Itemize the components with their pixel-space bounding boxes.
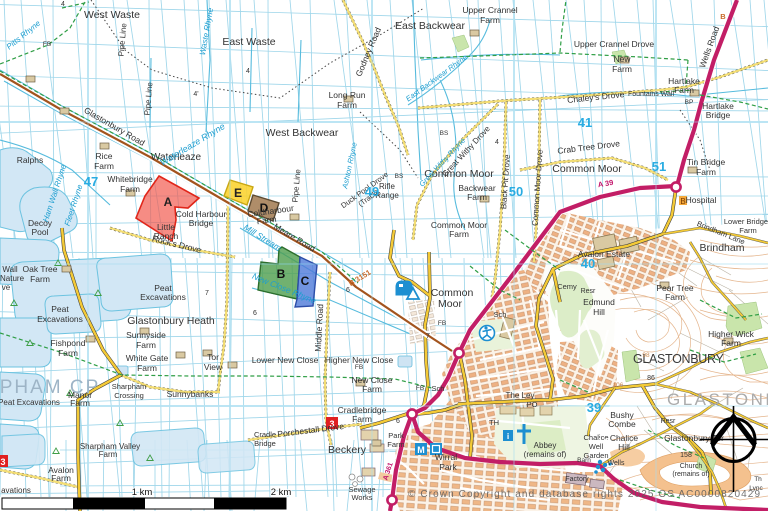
svg-text:Cemy: Cemy bbox=[557, 282, 577, 291]
svg-text:BS: BS bbox=[395, 173, 404, 180]
svg-text:ve: ve bbox=[2, 283, 11, 292]
svg-text:Upper Crannel Drove: Upper Crannel Drove bbox=[574, 39, 655, 49]
svg-text:Bridge: Bridge bbox=[706, 110, 731, 120]
svg-text:Barn: Barn bbox=[577, 457, 591, 464]
svg-text:Hill: Hill bbox=[618, 442, 630, 452]
svg-text:3: 3 bbox=[0, 457, 5, 467]
svg-text:Tin Bridge: Tin Bridge bbox=[687, 157, 726, 167]
svg-text:Peat: Peat bbox=[51, 304, 69, 314]
svg-text:(remains of): (remains of) bbox=[672, 471, 709, 478]
svg-text:6: 6 bbox=[253, 310, 257, 317]
svg-text:FB: FB bbox=[438, 320, 446, 327]
svg-text:FB: FB bbox=[355, 364, 363, 371]
svg-text:BP: BP bbox=[685, 99, 694, 106]
svg-text:East Waste: East Waste bbox=[222, 36, 275, 48]
svg-text:Beckery: Beckery bbox=[328, 444, 367, 456]
svg-text:158: 158 bbox=[680, 452, 692, 459]
svg-text:Fishpond: Fishpond bbox=[51, 338, 86, 348]
svg-text:Farm: Farm bbox=[337, 100, 357, 110]
svg-text:Edmund: Edmund bbox=[583, 297, 615, 307]
svg-text:Bridge: Bridge bbox=[189, 218, 214, 228]
svg-text:Farm: Farm bbox=[449, 229, 469, 239]
svg-text:© Crown Copyright and database: © Crown Copyright and database rights 20… bbox=[408, 489, 760, 500]
svg-text:FB: FB bbox=[416, 385, 424, 392]
svg-text:49: 49 bbox=[365, 184, 379, 199]
svg-text:Sunnyside: Sunnyside bbox=[126, 330, 166, 340]
svg-text:TH: TH bbox=[489, 418, 499, 427]
svg-text:West Backwear: West Backwear bbox=[266, 127, 339, 139]
svg-text:Resr: Resr bbox=[661, 418, 676, 425]
svg-text:Farm: Farm bbox=[480, 15, 500, 25]
svg-text:View: View bbox=[204, 362, 223, 372]
svg-text:40: 40 bbox=[581, 256, 595, 271]
svg-text:Park: Park bbox=[388, 431, 404, 440]
svg-text:Farm: Farm bbox=[136, 340, 156, 350]
svg-text:47: 47 bbox=[84, 174, 98, 189]
svg-text:Factory: Factory bbox=[565, 476, 589, 483]
svg-text:Resr: Resr bbox=[581, 288, 596, 295]
svg-text:Peat Excavations: Peat Excavations bbox=[0, 398, 60, 407]
svg-text:Farm: Farm bbox=[120, 184, 140, 194]
svg-text:Moor: Moor bbox=[438, 298, 462, 310]
svg-text:Th: Th bbox=[754, 476, 762, 483]
svg-text:Farm: Farm bbox=[58, 348, 78, 358]
svg-text:Farm: Farm bbox=[30, 274, 50, 284]
svg-text:Rifle: Rifle bbox=[379, 182, 396, 191]
svg-text:86: 86 bbox=[647, 375, 655, 382]
svg-text:Excavations: Excavations bbox=[37, 314, 83, 324]
svg-text:M: M bbox=[417, 445, 425, 455]
svg-text:Wells: Wells bbox=[608, 460, 625, 467]
svg-text:Farm: Farm bbox=[352, 414, 372, 424]
svg-text:41: 41 bbox=[578, 115, 592, 130]
svg-text:4: 4 bbox=[495, 139, 499, 146]
svg-text:(remains of): (remains of) bbox=[524, 450, 567, 459]
svg-text:Lower New Close: Lower New Close bbox=[252, 355, 319, 365]
svg-text:Fountains Wall: Fountains Wall bbox=[628, 91, 674, 98]
svg-text:7: 7 bbox=[426, 333, 430, 340]
svg-text:1 km: 1 km bbox=[132, 487, 153, 498]
svg-text:Farm: Farm bbox=[70, 398, 90, 408]
svg-text:B: B bbox=[720, 12, 726, 21]
svg-text:Long Run: Long Run bbox=[329, 90, 366, 100]
svg-text:Hospital: Hospital bbox=[686, 195, 717, 205]
svg-text:Works: Works bbox=[351, 493, 372, 502]
svg-text:Lower Bridge: Lower Bridge bbox=[724, 217, 768, 226]
svg-text:C: C bbox=[301, 274, 310, 288]
svg-text:4': 4' bbox=[193, 91, 198, 98]
svg-text:Farm: Farm bbox=[387, 440, 405, 449]
svg-text:Wall: Wall bbox=[2, 265, 17, 274]
svg-text:Crossing: Crossing bbox=[114, 391, 144, 400]
svg-text:Combe: Combe bbox=[608, 419, 636, 429]
svg-text:Ralphs: Ralphs bbox=[17, 155, 43, 165]
svg-text:Farm: Farm bbox=[739, 226, 757, 235]
svg-text:Upper Crannel: Upper Crannel bbox=[462, 5, 517, 15]
svg-text:Tor: Tor bbox=[207, 352, 219, 362]
svg-text:2 km: 2 km bbox=[271, 487, 292, 498]
svg-text:Farm: Farm bbox=[137, 363, 157, 373]
svg-text:Common Moor: Common Moor bbox=[552, 163, 622, 175]
svg-text:4: 4 bbox=[246, 68, 250, 75]
svg-text:White Gate: White Gate bbox=[126, 353, 169, 363]
svg-text:Bridge: Bridge bbox=[254, 439, 276, 448]
svg-text:Excavations: Excavations bbox=[140, 292, 186, 302]
svg-text:Farm: Farm bbox=[467, 192, 487, 202]
svg-text:GLASTONBU: GLASTONBU bbox=[667, 390, 768, 409]
svg-text:PO: PO bbox=[527, 400, 538, 409]
svg-text:Farm: Farm bbox=[696, 167, 716, 177]
svg-text:39: 39 bbox=[587, 400, 601, 415]
svg-text:98: 98 bbox=[642, 352, 650, 359]
svg-text:Nature: Nature bbox=[0, 274, 25, 283]
svg-text:A: A bbox=[164, 195, 173, 209]
svg-text:The Ley: The Ley bbox=[506, 391, 535, 400]
svg-text:51: 51 bbox=[652, 159, 666, 174]
svg-text:Hill: Hill bbox=[593, 307, 605, 317]
svg-text:Farm: Farm bbox=[362, 384, 382, 394]
svg-text:Whitebridge: Whitebridge bbox=[107, 174, 153, 184]
svg-text:Cradle: Cradle bbox=[254, 430, 276, 439]
svg-text:Abbey: Abbey bbox=[534, 441, 557, 450]
svg-text:4: 4 bbox=[61, 1, 65, 8]
svg-text:i: i bbox=[507, 431, 509, 441]
svg-text:Church: Church bbox=[680, 463, 703, 470]
svg-text:7: 7 bbox=[205, 290, 209, 297]
svg-text:New: New bbox=[613, 54, 631, 64]
svg-text:6: 6 bbox=[396, 418, 400, 425]
svg-text:6: 6 bbox=[346, 287, 350, 294]
svg-text:Wirral: Wirral bbox=[435, 452, 457, 462]
svg-text:East Backwear: East Backwear bbox=[395, 20, 466, 32]
svg-text:Farm: Farm bbox=[99, 450, 118, 459]
svg-text:avations: avations bbox=[1, 486, 31, 495]
svg-text:Sharpham: Sharpham bbox=[112, 382, 147, 391]
svg-text:Farm: Farm bbox=[721, 338, 741, 348]
svg-text:Glastonbury Heath: Glastonbury Heath bbox=[127, 315, 215, 327]
svg-text:Farm: Farm bbox=[612, 64, 632, 74]
svg-text:Sch: Sch bbox=[432, 384, 445, 393]
svg-text:Pool: Pool bbox=[31, 227, 48, 237]
svg-text:Rice: Rice bbox=[95, 151, 112, 161]
svg-text:Sch: Sch bbox=[494, 310, 507, 319]
svg-text:BS: BS bbox=[440, 130, 449, 137]
svg-text:B: B bbox=[277, 267, 286, 281]
svg-text:Farm: Farm bbox=[94, 161, 114, 171]
svg-text:Farm: Farm bbox=[665, 292, 685, 302]
svg-text:Farm: Farm bbox=[674, 85, 694, 95]
svg-text:Sunnybanks: Sunnybanks bbox=[167, 389, 214, 399]
svg-text:Farm: Farm bbox=[51, 473, 71, 483]
svg-text:106: 106 bbox=[613, 382, 624, 389]
svg-text:Park: Park bbox=[439, 462, 457, 472]
svg-text:Oak Tree: Oak Tree bbox=[23, 264, 58, 274]
svg-text:FB: FB bbox=[43, 41, 51, 48]
svg-text:West Waste: West Waste bbox=[84, 9, 140, 21]
svg-text:50: 50 bbox=[509, 184, 523, 199]
svg-text:E: E bbox=[234, 186, 242, 200]
